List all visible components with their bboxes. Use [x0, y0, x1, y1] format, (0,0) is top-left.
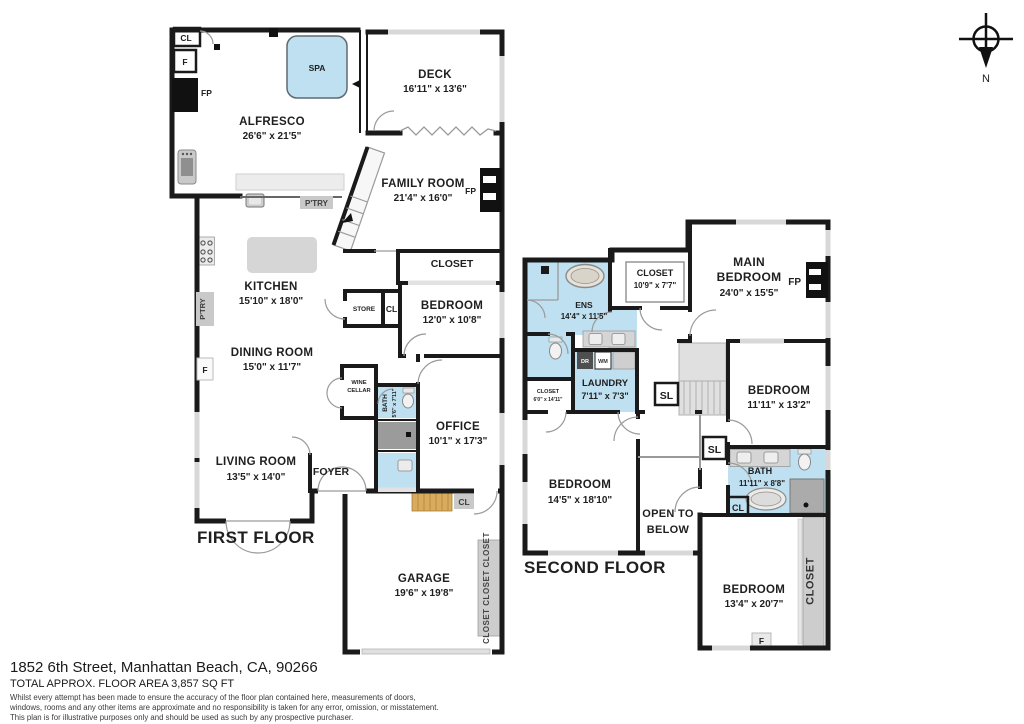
alfresco-counter — [236, 174, 344, 190]
bath2-dims: 11'11" x 8'8" — [739, 479, 785, 488]
sl2-label: SL — [708, 444, 722, 456]
toilet-icon — [403, 394, 414, 408]
f-label: F — [182, 57, 187, 67]
patio-heater-icon — [178, 150, 196, 184]
bath2-label: BATH — [748, 466, 772, 476]
second-floor-plan: SL SL ENS 14'4" x 11'5" CLOSET 10'9" x 7… — [523, 220, 831, 651]
bedroom-bottom-label: BEDROOM — [723, 584, 785, 596]
open-below-line1: OPEN TO — [642, 508, 694, 520]
garage-cl-label: CL — [458, 497, 469, 507]
dining-dims: 15'0" x 11'7" — [243, 362, 301, 373]
kitchen-cl-label: CL — [386, 304, 397, 314]
main-stairs — [679, 343, 726, 415]
open-below-line2: BELOW — [647, 524, 690, 536]
kitchen-dims: 15'10" x 18'0" — [239, 296, 304, 307]
spa-label: SPA — [309, 63, 326, 73]
wine-cellar-line1: WINE — [351, 380, 366, 386]
main-bedroom-line1: MAIN — [733, 255, 765, 269]
bedroom-left-label: BEDROOM — [549, 479, 611, 491]
floor-area-line: TOTAL APPROX. FLOOR AREA 3,857 SQ FT — [10, 678, 234, 690]
sl-box-1: SL — [655, 383, 678, 405]
compass-north-icon: N — [959, 13, 1013, 85]
laundry-counter — [613, 352, 635, 369]
closet-slider — [798, 519, 802, 644]
compass-n-label: N — [982, 73, 990, 85]
first-floor-title: FIRST FLOOR — [197, 528, 315, 547]
garage-closets-label: CLOSET CLOSET CLOSET — [482, 532, 491, 644]
dryer-label: DR — [581, 359, 589, 365]
sl-box-2: SL — [703, 437, 726, 459]
alfresco-dims: 26'6" x 21'5" — [243, 131, 302, 142]
bedroom-bottom-dims: 13'4" x 20'7" — [725, 599, 784, 610]
main-fp-label: FP — [788, 277, 801, 288]
f3-label: F — [759, 636, 764, 646]
bedroom1-label: BEDROOM — [421, 300, 483, 312]
deck-label: DECK — [418, 69, 452, 81]
address-line: 1852 6th Street, Manhattan Beach, CA, 90… — [10, 659, 318, 676]
bath1-dims: 5'6" x 7'11" — [392, 388, 398, 417]
kitchen-island — [247, 237, 317, 273]
bath1-label: BATH — [382, 394, 389, 412]
closet-top-label: CLOSET — [637, 268, 674, 278]
living-label: LIVING ROOM — [216, 456, 297, 468]
dining-label: DINING ROOM — [231, 347, 314, 359]
bath-cl-label: CL — [732, 503, 744, 513]
office-dims: 10'1" x 17'3" — [429, 436, 488, 447]
family-room-dims: 21'4" x 16'0" — [394, 193, 453, 204]
garage-dims: 19'6" x 19'8" — [395, 588, 454, 599]
second-floor-title: SECOND FLOOR — [524, 558, 666, 577]
toilet-tank — [403, 388, 414, 393]
floor-plan-page: CL CLOSET CLOSET CLOSET — [0, 0, 1024, 724]
first-floor-walls — [172, 28, 502, 652]
alfresco-label: ALFRESCO — [239, 116, 305, 128]
ens-label: ENS — [575, 300, 593, 310]
closet-small-dims: 6'0" x 14'11" — [533, 397, 563, 403]
main-bedroom-dims: 24'0" x 15'5" — [720, 288, 779, 299]
powder-sink-icon — [398, 460, 412, 471]
deck-dims: 16'11" x 13'6" — [403, 84, 467, 95]
footer-text: 1852 6th Street, Manhattan Beach, CA, 90… — [9, 659, 439, 722]
disclaimer-line-2: windows, rooms and any other items are a… — [9, 703, 439, 712]
bedroom1-dims: 12'0" x 10'8" — [423, 315, 482, 326]
family-fp-label: FP — [465, 186, 476, 196]
ens-dims: 14'4" x 11'5" — [561, 312, 608, 321]
pantry-vertical-label: P'TRY — [198, 298, 207, 320]
foyer-label: FOYER — [313, 466, 350, 478]
sl1-label: SL — [660, 390, 674, 402]
bedroom-right-label: BEDROOM — [748, 385, 810, 397]
disclaimer-line-3: This plan is for illustrative purposes o… — [10, 713, 353, 722]
wine-cellar-line2: CELLAR — [347, 388, 371, 394]
stairs-to-upper — [334, 147, 385, 251]
office-label: OFFICE — [436, 421, 480, 433]
pantry-label: P'TRY — [305, 199, 329, 208]
kitchen-label: KITCHEN — [244, 281, 297, 293]
closet-top-dims: 10'9" x 7'7" — [634, 281, 677, 290]
closet-small-label: CLOSET — [537, 389, 560, 395]
bedroom-right-dims: 11'11" x 13'2" — [747, 400, 810, 411]
floor-plan-drawing: CL CLOSET CLOSET CLOSET — [0, 0, 1024, 724]
closet-cl-label: CL — [180, 33, 191, 43]
closet1-label: CLOSET — [431, 258, 474, 270]
laundry-dims: 7'11" x 7'3" — [581, 391, 628, 401]
laundry-label: LAUNDRY — [582, 378, 629, 389]
disclaimer-line-1: Whilst every attempt has been made to en… — [10, 693, 416, 702]
f2-label: F — [202, 365, 207, 375]
main-bedroom-line2: BEDROOM — [717, 270, 782, 284]
garage-label: GARAGE — [398, 573, 450, 585]
living-dims: 13'5" x 14'0" — [227, 472, 286, 483]
garage-entry-steps — [412, 493, 452, 511]
stair-post — [406, 432, 411, 437]
first-floor-plan: CL CLOSET CLOSET CLOSET — [172, 28, 505, 655]
family-room-label: FAMILY ROOM — [381, 178, 464, 190]
fireplace-label: FP — [201, 88, 212, 98]
closet-side-label: CLOSET — [805, 557, 817, 605]
bedroom-left-dims: 14'5" x 18'10" — [548, 495, 613, 506]
washer-label: WM — [598, 359, 608, 365]
store-label: STORE — [353, 306, 376, 313]
